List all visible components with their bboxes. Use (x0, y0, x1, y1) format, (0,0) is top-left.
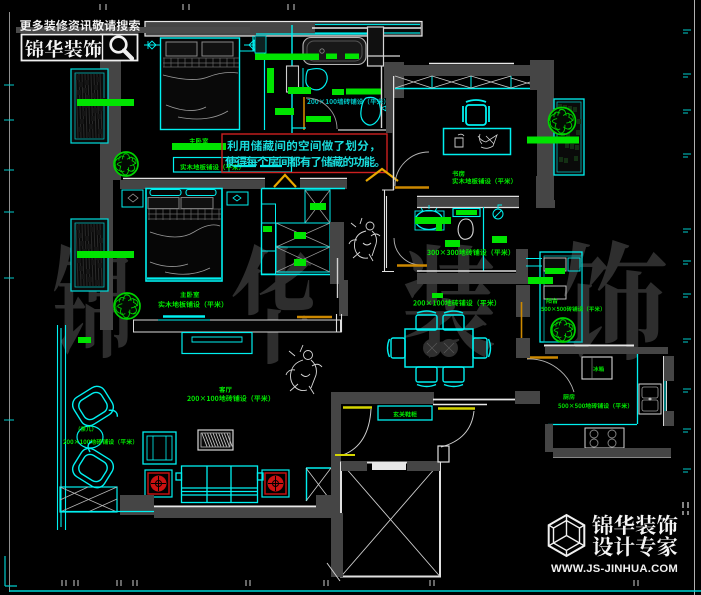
svg-text:WWW.JS-JINHUA.COM: WWW.JS-JINHUA.COM (551, 563, 678, 575)
